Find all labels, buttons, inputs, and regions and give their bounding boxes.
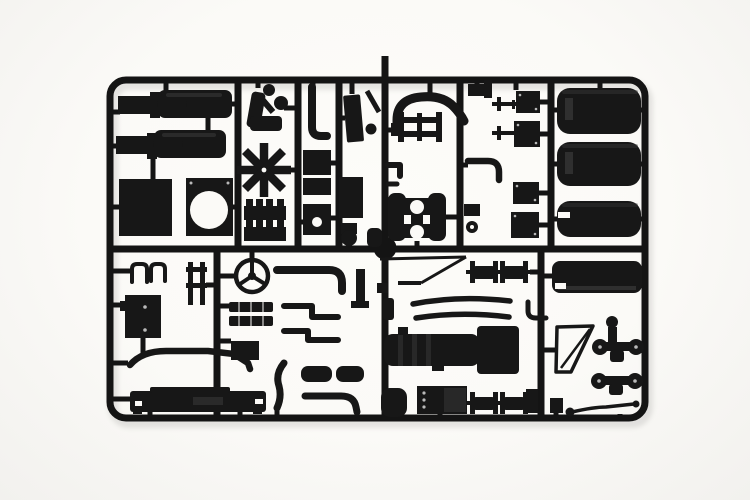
part-knob-part: [341, 223, 357, 246]
part-engine-mount: [388, 193, 446, 241]
part-mudflap-plate-a: [516, 91, 540, 113]
part-tie-rod: [566, 401, 640, 417]
part-wishbone: [380, 257, 466, 283]
part-muffler-b: [336, 366, 364, 382]
part-u-bracket-b: [151, 264, 165, 281]
part-angled-pin: [367, 91, 379, 112]
part-window-frame: [556, 326, 593, 372]
part-long-spring-a: [413, 299, 510, 304]
part-fender-3: [557, 201, 641, 237]
part-mid-plate: [339, 177, 363, 218]
part-ribbed-block-lower: [244, 220, 286, 241]
part-fender-1: [557, 88, 641, 134]
part-runner-block: [377, 283, 388, 293]
part-fuel-tank-lower: [116, 130, 226, 159]
part-battery-box: [119, 179, 172, 236]
part-elbow-pipe-low: [305, 396, 357, 412]
part-door-panel: [120, 295, 161, 338]
part-hole-plate: [303, 204, 331, 235]
part-small-blob: [367, 228, 382, 247]
part-small-bracket-b: [464, 204, 480, 216]
photo-stage: [0, 0, 750, 500]
part-engine-gearbox: [384, 326, 519, 374]
part-mudflap-plate-c: [513, 182, 539, 204]
part-fender-2: [557, 142, 641, 186]
part-exhaust-top-pipe: [277, 270, 342, 291]
part-roof-deflector: [552, 261, 642, 293]
part-small-ring: [466, 221, 478, 233]
part-mudflap-plate-b: [514, 121, 540, 147]
model-kit-sprue-photo: [0, 0, 750, 500]
part-muffler-a: [301, 366, 332, 382]
part-side-plate-a: [526, 389, 538, 413]
part-radiator-fan: [237, 143, 291, 197]
part-stacked-plates: [303, 150, 331, 195]
part-mini-ladder: [186, 262, 207, 305]
part-small-box: [231, 341, 259, 360]
part-ribbed-block-upper: [244, 199, 286, 220]
part-front-bumper: [130, 387, 266, 414]
part-z-pipe-a: [284, 306, 338, 317]
part-mudflap-plate-d: [511, 212, 539, 238]
part-s-pipe: [277, 363, 284, 408]
part-fuel-tank-upper: [118, 90, 232, 118]
part-ladder-frame: [398, 112, 442, 142]
part-u-bracket-a: [132, 264, 147, 282]
part-post-part: [351, 269, 369, 308]
part-gear-lever: [383, 298, 394, 320]
part-side-plate-b: [550, 398, 563, 413]
part-j-pipe: [312, 87, 327, 136]
part-front-axle-upper: [592, 339, 644, 362]
part-seat-bracket: [246, 84, 288, 131]
part-elbow-a: [388, 165, 400, 176]
part-cross-rod-b: [492, 126, 516, 140]
part-front-axle-lower: [591, 373, 643, 395]
part-floor-panel: [417, 386, 467, 414]
part-air-tank: [381, 388, 407, 417]
part-steering-knuckle: [606, 316, 618, 344]
part-cross-rod-a: [492, 97, 516, 111]
part-steering-wheel: [236, 260, 268, 292]
part-long-spring-b: [416, 314, 509, 318]
part-leaf-spring-a: [229, 302, 273, 312]
part-elbow-pipe-c: [468, 161, 499, 180]
part-z-pipe-b: [284, 331, 338, 340]
part-leaf-spring-b: [229, 316, 273, 326]
part-speaker-panel: [186, 178, 233, 236]
part-axle-spider-b: [496, 261, 532, 283]
part-tall-panel: [343, 94, 364, 142]
part-small-ball: [366, 124, 377, 135]
